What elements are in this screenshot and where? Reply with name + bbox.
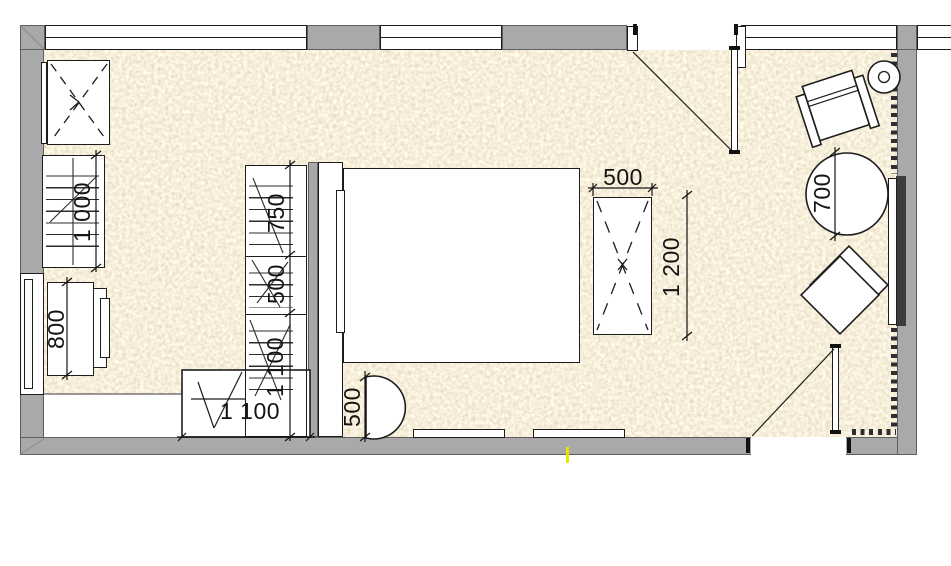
left-wall-niche-inner — [24, 279, 33, 389]
window-glass-line — [380, 37, 502, 38]
floor-plan: 1 000 800 750 500 1 100 1 100 500 500 1 … — [0, 0, 951, 566]
curtain-track-icon — [852, 429, 896, 435]
dim-label-round-table: 700 — [809, 148, 835, 238]
door-bottom-leaf — [832, 347, 839, 431]
wall-band-extension-right — [917, 25, 951, 50]
dim-label-side-table-length: 1 200 — [658, 222, 684, 312]
dim-label-desk: 1 100 — [205, 398, 295, 424]
door-top-jamb-left-mark — [633, 24, 637, 35]
baseboard-unit-2 — [533, 429, 625, 438]
wall-pier-top-1 — [307, 25, 380, 50]
dim-label-bedside-table: 500 — [339, 362, 365, 452]
door-top-jamb-right-mark — [734, 24, 738, 35]
baseboard-unit-1 — [413, 429, 505, 438]
dim-label-left-shelving: 1 000 — [69, 167, 95, 257]
door-top-leaf-cap — [729, 150, 740, 154]
wall-pier-top-left — [20, 25, 45, 50]
dresser-800-front-2 — [100, 298, 110, 358]
window-3 — [741, 25, 897, 50]
door-top-leaf — [731, 48, 738, 152]
tv-panel — [888, 178, 897, 325]
side-table-500x1200 — [593, 197, 652, 335]
door-bottom-jamb-left-mark — [746, 438, 750, 453]
window-1 — [45, 25, 307, 50]
window-glass-line — [917, 37, 951, 38]
dim-label-left-dresser: 800 — [43, 284, 69, 374]
wall-pier-top-2 — [502, 25, 627, 50]
door-bottom-jamb-right-mark — [847, 438, 851, 453]
wardrobe-top-left — [47, 60, 110, 145]
door-bottom-leaf-cap — [830, 344, 841, 348]
door-bottom-leaf-cap — [830, 430, 841, 434]
window-glass-line — [741, 37, 897, 38]
wall-pier-top-right — [897, 25, 917, 50]
bed-headboard — [336, 190, 345, 333]
curtain-track-icon — [891, 328, 897, 431]
window-2 — [380, 25, 502, 50]
curtain-track-icon — [891, 53, 897, 174]
door-top-leaf-cap — [729, 46, 740, 50]
window-glass-line — [45, 37, 307, 38]
tv-wall-mount — [896, 176, 906, 326]
outlet-marker-icon — [566, 447, 569, 463]
dim-label-wardrobe-middle: 500 — [263, 239, 289, 329]
dim-label-side-table-width: 500 — [578, 164, 668, 190]
door-bottom-opening — [751, 437, 846, 456]
bed — [343, 168, 580, 363]
